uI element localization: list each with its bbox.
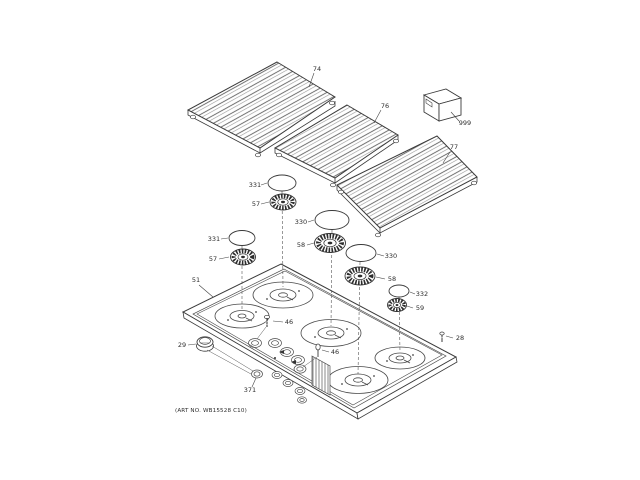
burner-cap-332	[389, 285, 409, 297]
maintop-panel	[183, 264, 457, 419]
part-label-74: 74	[313, 65, 321, 73]
grate-foot	[471, 181, 476, 185]
grate-foot	[393, 139, 398, 143]
part-label-57-top: 57	[252, 200, 260, 208]
part-label-59: 59	[416, 304, 424, 312]
part-label-330-right: 330	[385, 252, 397, 260]
part-label-29: 29	[178, 341, 186, 349]
burner-cap-331-top	[268, 175, 296, 191]
part-label-46-top: 46	[285, 318, 293, 326]
part-label-76: 76	[381, 102, 389, 110]
burner-head-57-top	[270, 194, 296, 210]
part-label-28: 28	[456, 334, 464, 342]
part-label-77: 77	[450, 143, 458, 151]
screw-28	[440, 332, 444, 342]
literature-box	[424, 89, 461, 121]
grate-foot	[329, 101, 334, 105]
part-label-330-top: 330	[295, 218, 307, 226]
part-label-51: 51	[192, 276, 200, 284]
grate-foot	[255, 153, 260, 157]
burner-cap-330-top	[315, 211, 349, 230]
part-label-58-right: 58	[388, 275, 396, 283]
part-label-371: 371	[244, 386, 256, 394]
cooktop-exploded-diagram: 74 76 77 999 331 57 330 331 57 58 330 58…	[0, 0, 640, 480]
burner-head-57-left	[231, 249, 256, 265]
part-label-58-center: 58	[297, 241, 305, 249]
part-label-332: 332	[416, 290, 428, 298]
part-label-999: 999	[459, 119, 471, 127]
grate-foot	[330, 183, 335, 187]
part-label-331-left: 331	[208, 235, 220, 243]
grate-foot	[375, 233, 380, 237]
burner-head-58-center	[315, 234, 346, 253]
burner-head-59	[388, 299, 407, 312]
grate-foot	[276, 153, 281, 157]
burner-head-58-right	[345, 267, 375, 285]
exploded-parts-diagram-page: 74 76 77 999 331 57 330 331 57 58 330 58…	[0, 0, 640, 480]
part-label-46-front: 46	[331, 348, 339, 356]
art-number-text: (ART NO. WB15528 C10)	[175, 408, 247, 414]
burner-cap-330-right	[346, 245, 376, 262]
grate-foot	[338, 190, 343, 194]
part-label-331-top: 331	[249, 181, 261, 189]
burner-cap-331-left	[229, 231, 255, 246]
part-label-57-left: 57	[209, 255, 217, 263]
grate-foot	[190, 115, 195, 119]
